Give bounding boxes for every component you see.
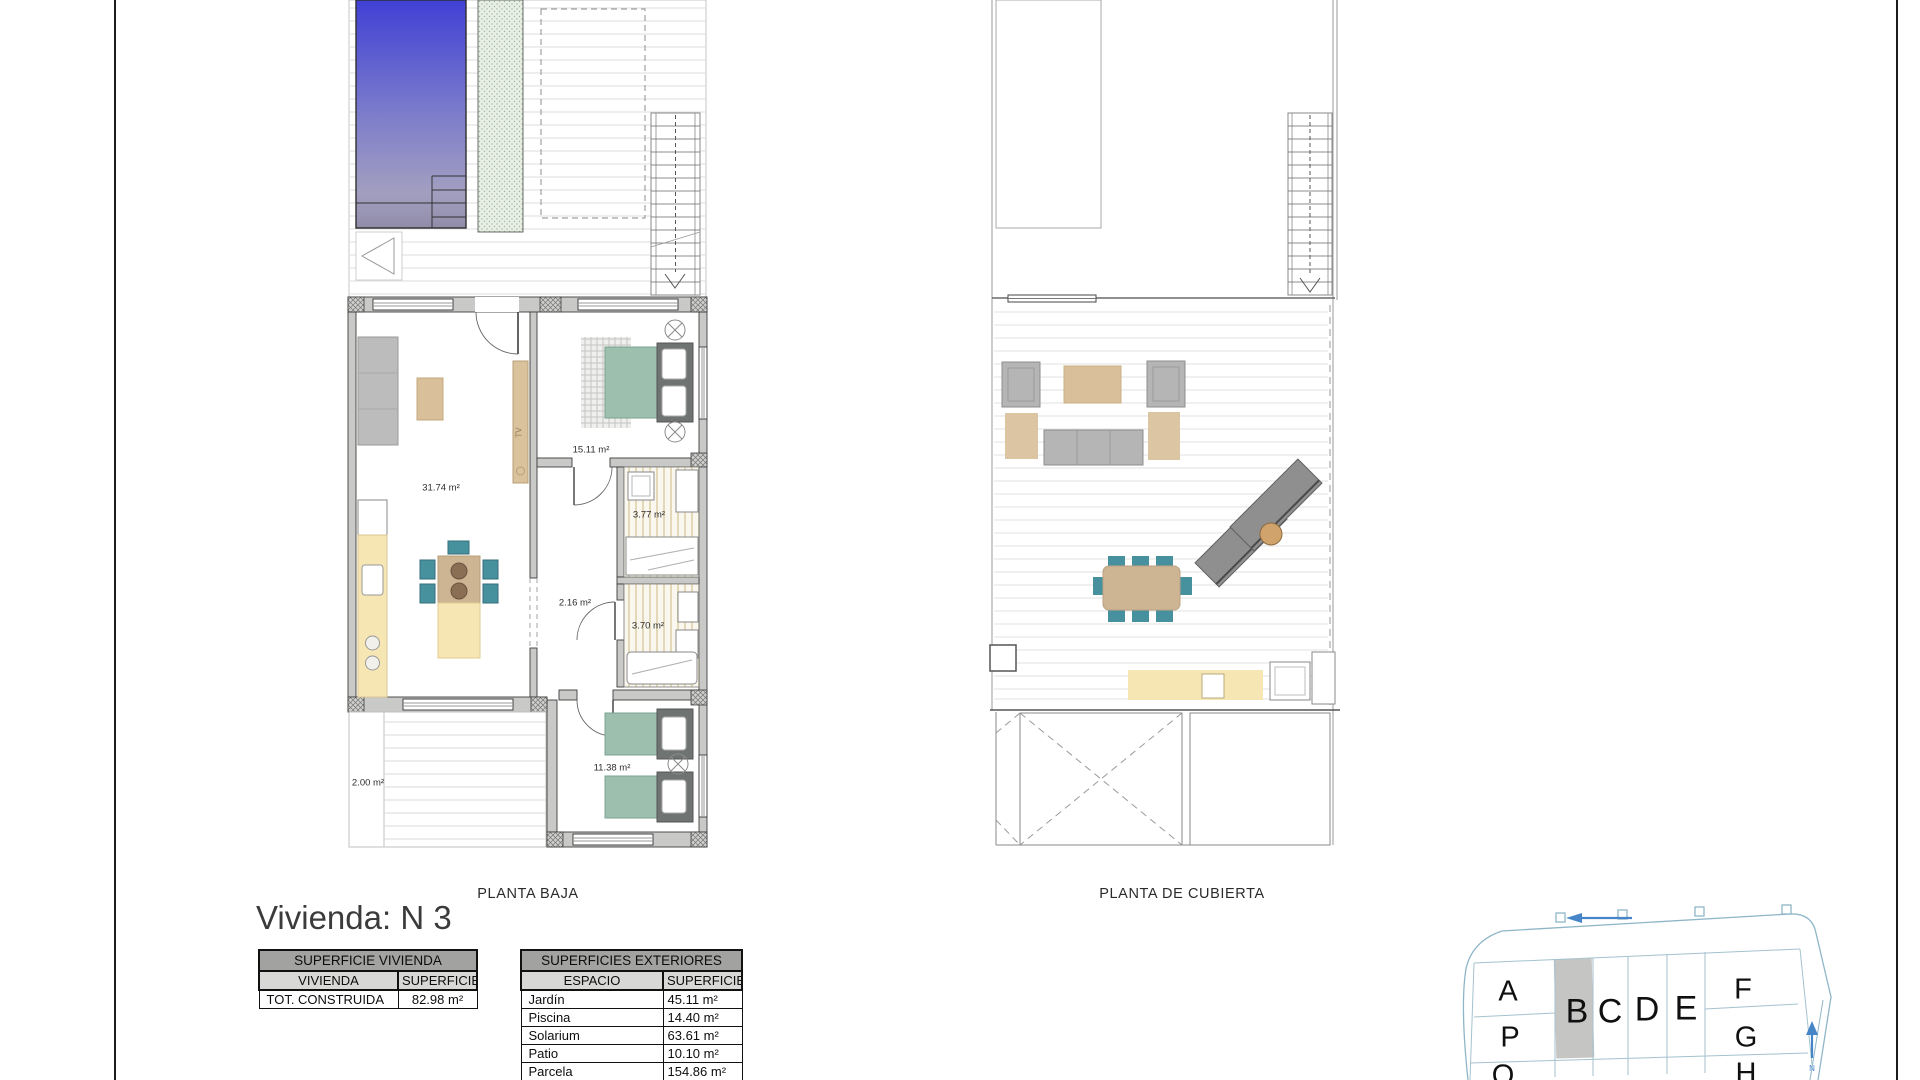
bathroom-1 bbox=[624, 467, 699, 577]
table-row: Piscina 14.40 m² bbox=[521, 1009, 742, 1027]
lower-roof bbox=[990, 710, 1340, 845]
floorplan-sheet: 31.74 m² 15.11 m² 3.77 m² 2.16 m² 3.70 m… bbox=[0, 0, 1920, 1080]
garden-arrow bbox=[356, 232, 402, 280]
site-plot-g: G bbox=[1735, 1022, 1758, 1055]
site-direction-arrow bbox=[1566, 913, 1632, 923]
room-label-bedroom-2: 11.38 m² bbox=[594, 763, 631, 774]
tv-label: TV bbox=[515, 427, 524, 437]
site-plan-drawing: N bbox=[1460, 905, 1870, 1080]
roof-stairs bbox=[1288, 113, 1332, 295]
site-plot-h: H bbox=[1736, 1058, 1757, 1080]
col-header: SUPERFICIE bbox=[663, 971, 742, 990]
col-header: ESPACIO bbox=[521, 971, 663, 990]
row-value: 14.40 m² bbox=[663, 1009, 742, 1027]
site-plot-e: E bbox=[1675, 990, 1698, 1029]
sofa bbox=[358, 337, 398, 445]
tv-unit bbox=[513, 361, 528, 483]
north-label: N bbox=[1809, 1064, 1815, 1073]
site-plot-q: Q bbox=[1492, 1060, 1515, 1080]
table-superficies-exteriores: SUPERFICIES EXTERIORES ESPACIO SUPERFICI… bbox=[520, 949, 743, 1080]
planting-strip bbox=[478, 0, 523, 232]
table-row: TOT. CONSTRUIDA 82.98 m² bbox=[259, 990, 477, 1009]
coffee-table bbox=[417, 378, 443, 420]
table-row: Parcela 154.86 m² bbox=[521, 1063, 742, 1080]
bathroom-2 bbox=[624, 584, 699, 687]
site-plot-d: D bbox=[1635, 991, 1660, 1030]
table-title: SUPERFICIE VIVIENDA bbox=[259, 950, 477, 971]
planta-baja-drawing bbox=[348, 0, 720, 852]
room-label-hall: 2.16 m² bbox=[559, 598, 591, 609]
table-superficie-vivienda: SUPERFICIE VIVIENDA VIVIENDA SUPERFICIE … bbox=[258, 949, 478, 1009]
bedroom-main bbox=[581, 320, 693, 442]
page-border-right bbox=[1896, 0, 1898, 1080]
solarium-dashed-outline bbox=[541, 9, 645, 218]
site-plot-a: A bbox=[1498, 976, 1517, 1009]
site-plot-c: C bbox=[1598, 993, 1623, 1032]
row-label: Jardín bbox=[521, 990, 663, 1009]
site-plot-p: P bbox=[1500, 1022, 1519, 1055]
page-border-left bbox=[114, 0, 116, 1080]
row-label: Parcela bbox=[521, 1063, 663, 1080]
room-label-patio: 2.00 m² bbox=[352, 778, 384, 789]
table-row: Patio 10.10 m² bbox=[521, 1045, 742, 1063]
table-title: SUPERFICIES EXTERIORES bbox=[521, 950, 742, 971]
site-plot-b: B bbox=[1566, 993, 1589, 1032]
col-header: VIVIENDA bbox=[259, 971, 398, 990]
site-plot-f: F bbox=[1734, 974, 1752, 1007]
table-row: Solarium 63.61 m² bbox=[521, 1027, 742, 1045]
room-label-living: 31.74 m² bbox=[422, 483, 460, 494]
sun-loungers bbox=[1195, 459, 1322, 587]
garden-stairs bbox=[651, 113, 700, 295]
row-label: Patio bbox=[521, 1045, 663, 1063]
page-title: Vivienda: N 3 bbox=[256, 899, 452, 937]
outdoor-counter bbox=[990, 645, 1335, 704]
table-row: Jardín 45.11 m² bbox=[521, 990, 742, 1009]
room-label-bath-2: 3.70 m² bbox=[632, 621, 664, 632]
row-label: Solarium bbox=[521, 1027, 663, 1045]
room-label-bath-1: 3.77 m² bbox=[633, 510, 665, 521]
row-label: TOT. CONSTRUIDA bbox=[259, 990, 398, 1009]
row-value: 82.98 m² bbox=[398, 990, 477, 1009]
terrace-dining-set bbox=[1093, 556, 1192, 622]
pool bbox=[356, 0, 466, 228]
row-value: 154.86 m² bbox=[663, 1063, 742, 1080]
row-label: Piscina bbox=[521, 1009, 663, 1027]
col-header: SUPERFICIE bbox=[398, 971, 477, 990]
row-value: 10.10 m² bbox=[663, 1045, 742, 1063]
row-value: 45.11 m² bbox=[663, 990, 742, 1009]
side-table bbox=[1260, 523, 1282, 545]
row-value: 63.61 m² bbox=[663, 1027, 742, 1045]
kitchen-counter bbox=[358, 500, 387, 697]
planta-cubierta-drawing bbox=[990, 0, 1342, 852]
dining-set-gf bbox=[420, 541, 498, 658]
caption-planta-cubierta: PLANTA DE CUBIERTA bbox=[1052, 886, 1312, 902]
room-label-bedroom-main: 15.11 m² bbox=[573, 445, 610, 456]
terrace-lounge-set bbox=[1002, 361, 1185, 465]
